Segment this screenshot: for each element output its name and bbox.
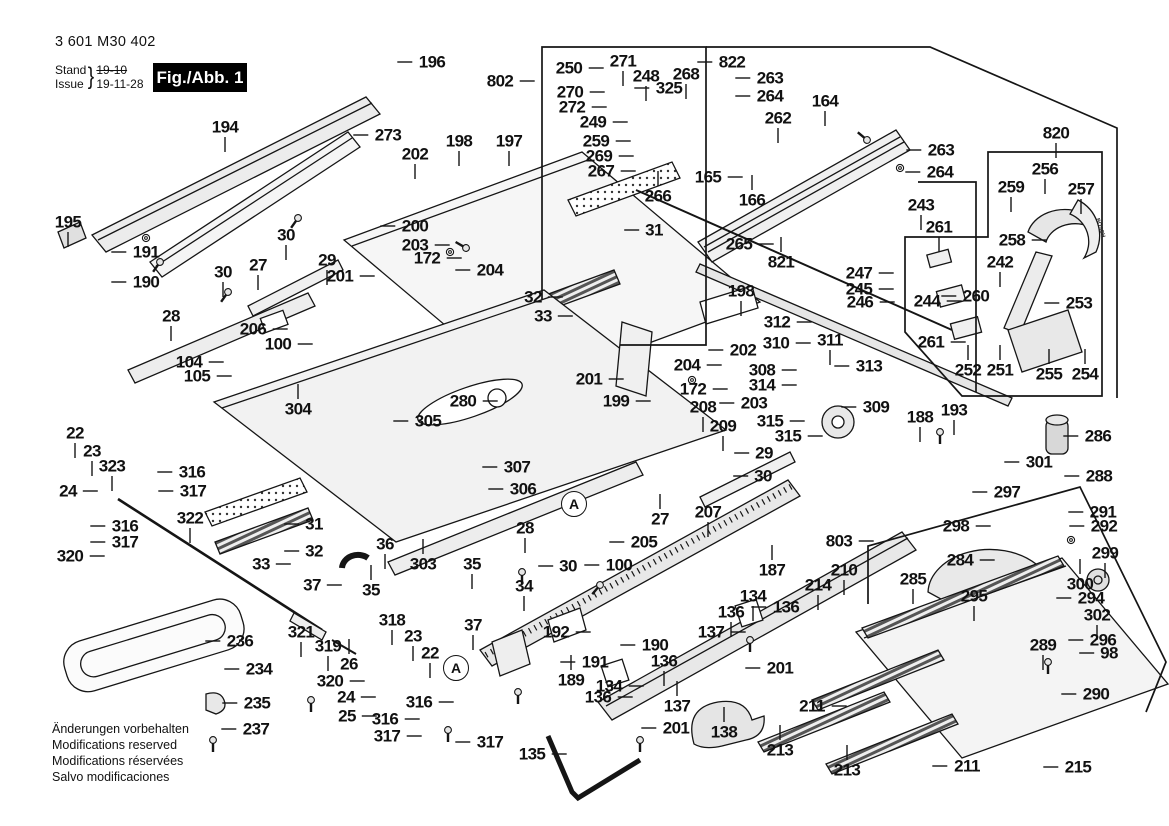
part-callout-264: 264 [757, 88, 784, 105]
part-callout-33: 33 [252, 556, 270, 573]
part-callout-204: 204 [674, 357, 701, 374]
guard-blade-257 [1070, 200, 1100, 258]
part-callout-36: 36 [376, 536, 394, 553]
part-callout-201: 201 [767, 660, 794, 677]
footer-line-es: Salvo modificaciones [52, 769, 189, 785]
part-callout-323: 323 [99, 458, 126, 475]
part-callout-27: 27 [651, 511, 669, 528]
revision-labels: Stand Issue [55, 63, 86, 91]
part-callout-172: 172 [680, 381, 707, 398]
part-callout-253: 253 [1066, 295, 1093, 312]
part-callout-317: 317 [180, 483, 207, 500]
part-callout-188: 188 [907, 409, 934, 426]
part-callout-234: 234 [246, 661, 273, 678]
hook-36 [342, 555, 368, 568]
part-callout-26: 26 [340, 656, 358, 673]
part-callout-295: 295 [961, 588, 988, 605]
part-callout-289: 289 [1030, 637, 1057, 654]
part-callout-258: 258 [999, 232, 1026, 249]
part-callout-209: 209 [710, 418, 737, 435]
part-callout-208: 208 [690, 399, 717, 416]
part-callout-821: 821 [768, 254, 795, 271]
part-callout-320: 320 [57, 548, 84, 565]
figure-badge: Fig./Abb. 1 [153, 63, 247, 92]
part-callout-243: 243 [908, 197, 935, 214]
part-callout-298: 298 [943, 518, 970, 535]
part-callout-317: 317 [477, 734, 504, 751]
part-callout-250: 250 [556, 60, 583, 77]
part-callout-286: 286 [1085, 428, 1112, 445]
part-callout-165: 165 [695, 169, 722, 186]
part-callout-325: 325 [656, 80, 683, 97]
part-callout-22: 22 [66, 425, 84, 442]
part-callout-30: 30 [277, 227, 295, 244]
part-callout-137: 137 [698, 624, 725, 641]
part-callout-201: 201 [576, 371, 603, 388]
part-callout-214: 214 [805, 577, 832, 594]
part-callout-198: 198 [728, 283, 755, 300]
part-callout-34: 34 [515, 578, 533, 595]
detail-marker-A: A [561, 491, 587, 517]
part-callout-322: 322 [177, 510, 204, 527]
part-callout-316: 316 [372, 711, 399, 728]
part-callout-307: 307 [504, 459, 531, 476]
part-callout-803: 803 [826, 533, 853, 550]
part-callout-204: 204 [477, 262, 504, 279]
part-callout-22: 22 [421, 645, 439, 662]
part-callout-100: 100 [606, 557, 633, 574]
part-callout-135: 135 [519, 746, 546, 763]
issue-date: 19-11-28 [96, 77, 143, 91]
part-callout-187: 187 [759, 562, 786, 579]
part-callout-310: 310 [763, 335, 790, 352]
part-callout-288: 288 [1086, 468, 1113, 485]
part-callout-297: 297 [994, 484, 1021, 501]
part-callout-28: 28 [162, 308, 180, 325]
part-callout-24: 24 [59, 483, 77, 500]
part-callout-197: 197 [496, 133, 523, 150]
part-callout-195: 195 [55, 214, 82, 231]
part-callout-100: 100 [265, 336, 292, 353]
part-callout-215: 215 [1065, 759, 1092, 776]
part-callout-201: 201 [663, 720, 690, 737]
part-callout-190: 190 [133, 274, 160, 291]
part-callout-210: 210 [831, 562, 858, 579]
part-callout-166: 166 [739, 192, 766, 209]
part-callout-27: 27 [249, 257, 267, 274]
part-callout-30: 30 [214, 264, 232, 281]
revision-block: Stand Issue } 19-10 19-11-28 [55, 63, 156, 91]
part-callout-194: 194 [212, 119, 239, 136]
part-callout-254: 254 [1072, 366, 1099, 383]
part-callout-300: 300 [1067, 576, 1094, 593]
part-callout-303: 303 [410, 556, 437, 573]
part-callout-237: 237 [243, 721, 270, 738]
part-callout-29: 29 [755, 445, 773, 462]
part-callout-261: 261 [926, 219, 953, 236]
part-callout-260: 260 [963, 288, 990, 305]
issue-label: Issue [55, 77, 86, 91]
part-callout-206: 206 [240, 321, 267, 338]
part-callout-25: 25 [338, 708, 356, 725]
part-callout-136: 136 [585, 689, 612, 706]
part-callout-802: 802 [487, 73, 514, 90]
part-callout-211: 211 [799, 698, 825, 715]
footer-notice: Änderungen vorbehalten Modifications res… [52, 721, 189, 785]
stand-label: Stand [55, 63, 86, 77]
superseded-date: 19-10 [96, 63, 143, 77]
part-callout-32: 32 [305, 543, 323, 560]
part-callout-246: 246 [847, 294, 874, 311]
part-callout-302: 302 [1084, 607, 1111, 624]
part-callout-317: 317 [374, 728, 401, 745]
guide-199 [616, 322, 652, 396]
part-callout-242: 242 [987, 254, 1014, 271]
part-callout-202: 202 [402, 146, 429, 163]
part-callout-37: 37 [303, 577, 321, 594]
part-callout-263: 263 [757, 70, 784, 87]
brace-glyph: } [88, 63, 94, 91]
part-callout-301: 301 [1026, 454, 1053, 471]
cover-plate-234 [58, 594, 249, 698]
part-callout-138: 138 [711, 724, 738, 741]
hole-280 [488, 389, 506, 407]
part-callout-189: 189 [558, 672, 585, 689]
part-callout-317: 317 [112, 534, 139, 551]
part-callout-31: 31 [645, 222, 663, 239]
part-callout-191: 191 [582, 654, 609, 671]
part-callout-213: 213 [767, 742, 794, 759]
part-callout-280: 280 [450, 393, 477, 410]
part-callout-311: 311 [817, 332, 843, 349]
part-callout-201: 201 [327, 268, 354, 285]
part-callout-257: 257 [1068, 181, 1095, 198]
part-callout-196: 196 [419, 54, 446, 71]
part-callout-213: 213 [834, 762, 861, 779]
part-callout-192: 192 [543, 624, 570, 641]
detail-marker-A: A [443, 655, 469, 681]
part-callout-28: 28 [516, 520, 534, 537]
part-callout-32: 32 [524, 289, 542, 306]
part-callout-263: 263 [928, 142, 955, 159]
part-callout-30: 30 [754, 468, 772, 485]
part-callout-244: 244 [914, 293, 941, 310]
part-callout-251: 251 [987, 362, 1014, 379]
part-callout-200: 200 [402, 218, 429, 235]
part-callout-193: 193 [941, 402, 968, 419]
part-callout-255: 255 [1036, 366, 1063, 383]
part-callout-199: 199 [603, 393, 630, 410]
document-part-number: 3 601 M30 402 [55, 34, 156, 50]
part-callout-256: 256 [1032, 161, 1059, 178]
title-block: 3 601 M30 402 Stand Issue } 19-10 19-11-… [55, 34, 156, 91]
part-callout-164: 164 [812, 93, 839, 110]
part-callout-316: 316 [179, 464, 206, 481]
part-callout-205: 205 [631, 534, 658, 551]
part-callout-31: 31 [305, 516, 323, 533]
part-callout-37: 37 [464, 617, 482, 634]
part-callout-198: 198 [446, 133, 473, 150]
part-callout-105: 105 [184, 368, 211, 385]
part-callout-30: 30 [559, 558, 577, 575]
part-callout-316: 316 [406, 694, 433, 711]
part-callout-261: 261 [918, 334, 945, 351]
part-callout-820: 820 [1043, 125, 1070, 142]
parts-diagram-page: 3 601 M30 402 Stand Issue } 19-10 19-11-… [0, 0, 1169, 826]
part-callout-136: 136 [651, 653, 678, 670]
part-callout-191: 191 [133, 244, 160, 261]
part-callout-299: 299 [1092, 545, 1119, 562]
footer-line-fr: Modifications réservées [52, 753, 189, 769]
part-callout-23: 23 [404, 628, 422, 645]
part-callout-211: 211 [954, 758, 980, 775]
part-callout-305: 305 [415, 413, 442, 430]
block-261 [950, 317, 981, 340]
part-callout-822: 822 [719, 54, 746, 71]
part-callout-266: 266 [645, 188, 672, 205]
part-callout-33: 33 [534, 308, 552, 325]
revision-dates: 19-10 19-11-28 [96, 63, 143, 91]
part-callout-304: 304 [285, 401, 312, 418]
part-callout-207: 207 [695, 504, 722, 521]
part-callout-235: 235 [244, 695, 271, 712]
part-callout-309: 309 [863, 399, 890, 416]
part-callout-35: 35 [463, 556, 481, 573]
part-callout-172: 172 [414, 250, 441, 267]
part-callout-273: 273 [375, 127, 402, 144]
part-callout-98: 98 [1100, 645, 1118, 662]
part-callout-136: 136 [718, 604, 745, 621]
part-callout-203: 203 [741, 395, 768, 412]
rod-135 [548, 736, 640, 798]
part-callout-270: 270 [557, 84, 584, 101]
footer-line-en: Modifications reserved [52, 737, 189, 753]
part-callout-259: 259 [583, 133, 610, 150]
part-callout-136: 136 [773, 599, 800, 616]
part-callout-137: 137 [664, 698, 691, 715]
part-callout-312: 312 [764, 314, 791, 331]
part-callout-35: 35 [362, 582, 380, 599]
part-callout-265: 265 [726, 236, 753, 253]
part-callout-290: 290 [1083, 686, 1110, 703]
part-callout-285: 285 [900, 571, 927, 588]
part-callout-308: 308 [749, 362, 776, 379]
part-callout-321: 321 [288, 624, 315, 641]
part-callout-318: 318 [379, 612, 406, 629]
part-callout-306: 306 [510, 481, 537, 498]
part-callout-319: 319 [315, 638, 342, 655]
part-callout-313: 313 [856, 358, 883, 375]
part-callout-24: 24 [337, 689, 355, 706]
part-callout-284: 284 [947, 552, 974, 569]
footer-line-de: Änderungen vorbehalten [52, 721, 189, 737]
part-callout-262: 262 [765, 110, 792, 127]
part-callout-236: 236 [227, 633, 254, 650]
part-callout-315: 315 [775, 428, 802, 445]
part-callout-252: 252 [955, 362, 982, 379]
part-callout-292: 292 [1091, 518, 1118, 535]
clamp-235 [206, 693, 225, 714]
part-callout-264: 264 [927, 164, 954, 181]
block-260 [927, 249, 952, 267]
part-callout-202: 202 [730, 342, 757, 359]
part-callout-259: 259 [998, 179, 1025, 196]
